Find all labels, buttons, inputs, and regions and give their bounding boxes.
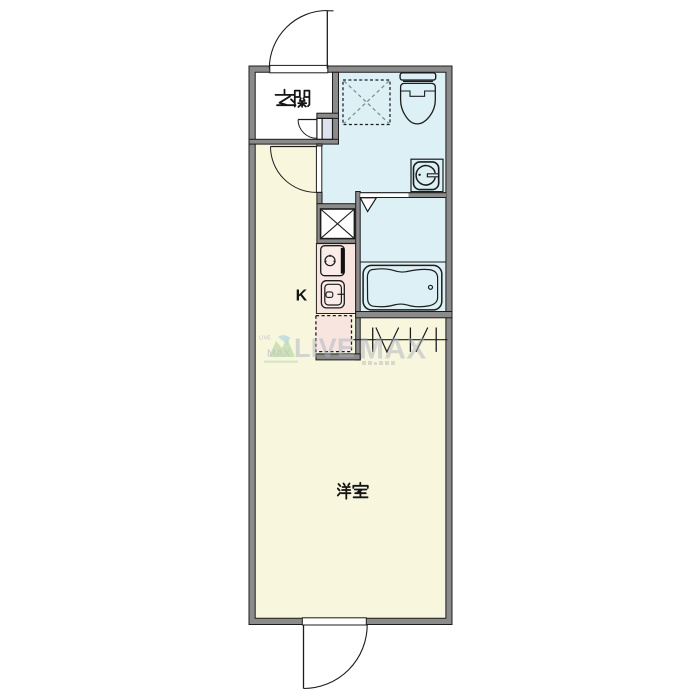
- svg-text:MAX: MAX: [359, 333, 427, 366]
- svg-text:LIVE: LIVE: [259, 336, 271, 342]
- svg-text:MAX: MAX: [267, 348, 290, 360]
- svg-text:K: K: [296, 287, 308, 304]
- svg-text:LIVE: LIVE: [294, 333, 355, 363]
